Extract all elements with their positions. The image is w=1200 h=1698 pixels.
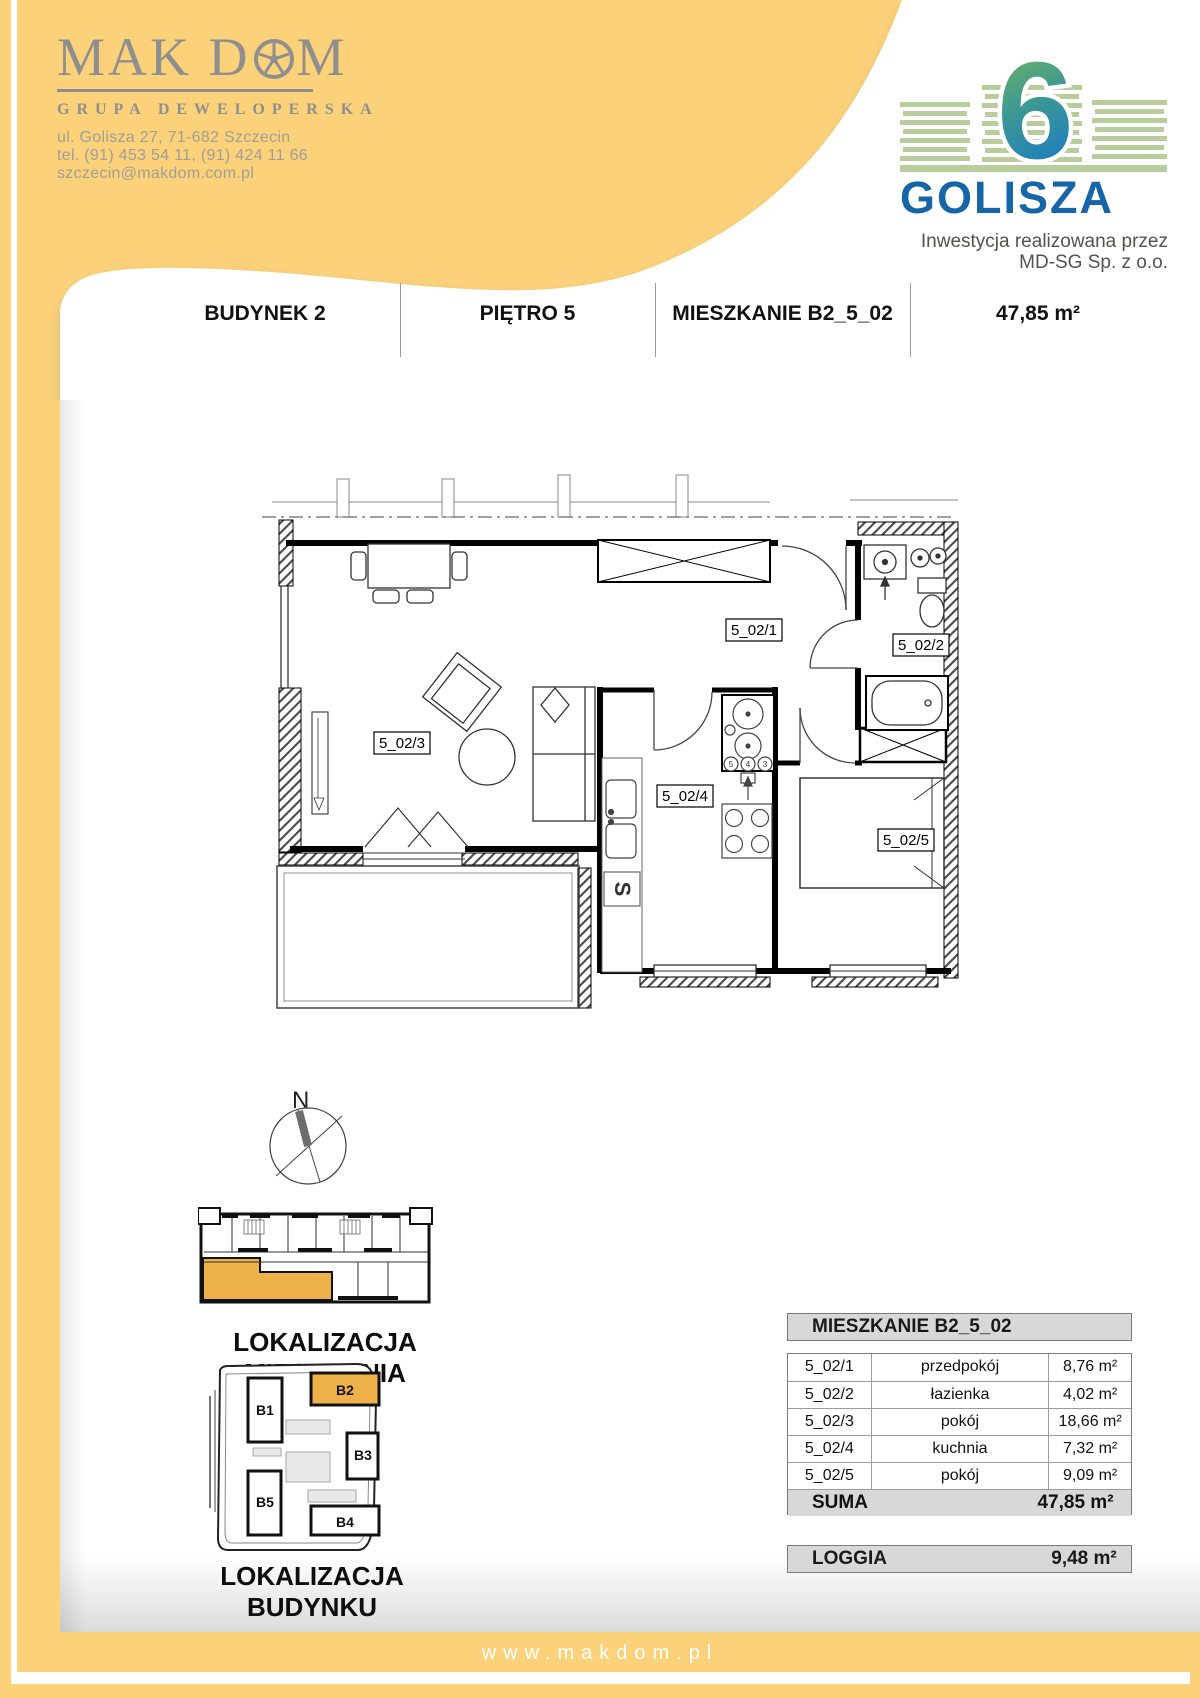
frame-line-vertical	[11, 0, 17, 1684]
makdom-wordmark: MAK D M	[57, 26, 379, 88]
room-area-table: 5_02/1 przedpokój 8,76 m² 5_02/2 łazienk…	[787, 1353, 1132, 1515]
makdom-text-right: M	[297, 26, 348, 88]
tagline-line2: MD-SG Sp. z o.o.	[860, 252, 1168, 273]
content-left-shadow	[60, 400, 86, 1632]
tagline-line1: Inwestycja realizowana przez	[860, 231, 1168, 252]
makdom-logo: MAK D M GRUPA DEWELOPERSKA ul. Golisza 2…	[57, 26, 379, 183]
company-subtitle: GRUPA DEWELOPERSKA	[57, 101, 379, 119]
suma-label: SUMA	[788, 1490, 1028, 1516]
boiler-symbol: S	[610, 882, 635, 897]
shaft-icon	[860, 728, 946, 762]
golisza-wordmark: GOLISZA	[900, 172, 1168, 224]
header-building: BUDYNEK 2	[180, 299, 350, 329]
neighbour-walls	[272, 475, 958, 517]
flyer-page: MAK D M GRUPA DEWELOPERSKA ul. Golisza 2…	[0, 0, 1200, 1698]
svg-text:3: 3	[763, 760, 768, 769]
loggia-outline	[277, 866, 579, 1008]
loggia-bar: LOGGIA 9,48 m²	[787, 1545, 1132, 1573]
svg-text:B3: B3	[354, 1447, 372, 1463]
loggia-label: LOGGIA	[812, 1546, 887, 1572]
building-right-icon	[1092, 100, 1167, 159]
compass-needle	[299, 1111, 308, 1146]
building-left-icon	[900, 102, 970, 161]
address-street: ul. Golisza 27, 71-682 Szczecin	[57, 129, 379, 147]
room-label-3: 5_02/3	[379, 735, 425, 752]
header-area: 47,85 m²	[958, 299, 1118, 329]
header-apartment: MIESZKANIE B2_5_02	[660, 299, 905, 329]
kitchen-fixtures	[602, 695, 774, 972]
logo-underline	[57, 89, 313, 92]
golisza-logo-graphic: 6	[895, 50, 1173, 176]
company-address: ul. Golisza 27, 71-682 Szczecin tel. (91…	[57, 129, 379, 183]
makdom-text-left: MAK D	[57, 26, 251, 88]
table-row: 5_02/5 pokój 9,09 m²	[788, 1462, 1131, 1489]
room-label-2: 5_02/2	[898, 637, 944, 654]
suma-value: 47,85 m²	[1028, 1490, 1123, 1516]
wheel-o-icon	[252, 37, 296, 81]
golisza-tagline: Inwestycja realizowana przez MD-SG Sp. z…	[860, 231, 1168, 273]
living-furniture	[312, 544, 595, 821]
frame-line-horizontal	[11, 1672, 1190, 1684]
floor-location-plan	[198, 1206, 434, 1310]
room-label-5: 5_02/5	[883, 832, 929, 849]
svg-text:4: 4	[746, 760, 751, 769]
table-title-bar: MIESZKANIE B2_5_02	[787, 1313, 1132, 1341]
table-row: 5_02/2 łazienka 4,02 m²	[788, 1381, 1131, 1408]
building-location-plan: B1 B2 B3 B5 B4	[208, 1360, 408, 1558]
table-row: 5_02/4 kuchnia 7,32 m²	[788, 1435, 1131, 1462]
table-title: MIESZKANIE B2_5_02	[812, 1314, 1012, 1340]
table-row: 5_02/3 pokój 18,66 m²	[788, 1408, 1131, 1435]
svg-text:B1: B1	[256, 1402, 274, 1418]
header-floor: PIĘTRO 5	[450, 299, 605, 329]
footer-website: www.makdom.pl	[0, 1642, 1200, 1665]
svg-text:B5: B5	[256, 1494, 274, 1510]
room-label-4: 5_02/4	[662, 788, 708, 805]
address-email: szczecin@makdom.com.pl	[57, 165, 379, 183]
header-divider-1	[400, 283, 401, 357]
compass-rose: N	[248, 1080, 368, 1200]
loggia-value: 9,48 m²	[1049, 1546, 1119, 1572]
caption-building-location: LOKALIZACJA BUDYNKU	[157, 1561, 467, 1623]
floor-plan: 5 4 3 S	[250, 455, 962, 1013]
balcony-door-icon	[365, 808, 468, 847]
svg-text:5: 5	[729, 760, 734, 769]
address-phone: tel. (91) 453 54 11, (91) 424 11 66	[57, 147, 379, 165]
table-suma-row: SUMA 47,85 m²	[788, 1489, 1131, 1516]
header-divider-2	[655, 283, 656, 357]
header-divider-3	[910, 283, 911, 357]
svg-text:B2: B2	[336, 1382, 354, 1398]
room-label-1: 5_02/1	[731, 622, 777, 639]
golisza-number: 6	[997, 50, 1074, 176]
table-row: 5_02/1 przedpokój 8,76 m²	[788, 1354, 1131, 1381]
svg-text:B4: B4	[336, 1514, 354, 1530]
wardrobe-icon	[598, 540, 770, 582]
